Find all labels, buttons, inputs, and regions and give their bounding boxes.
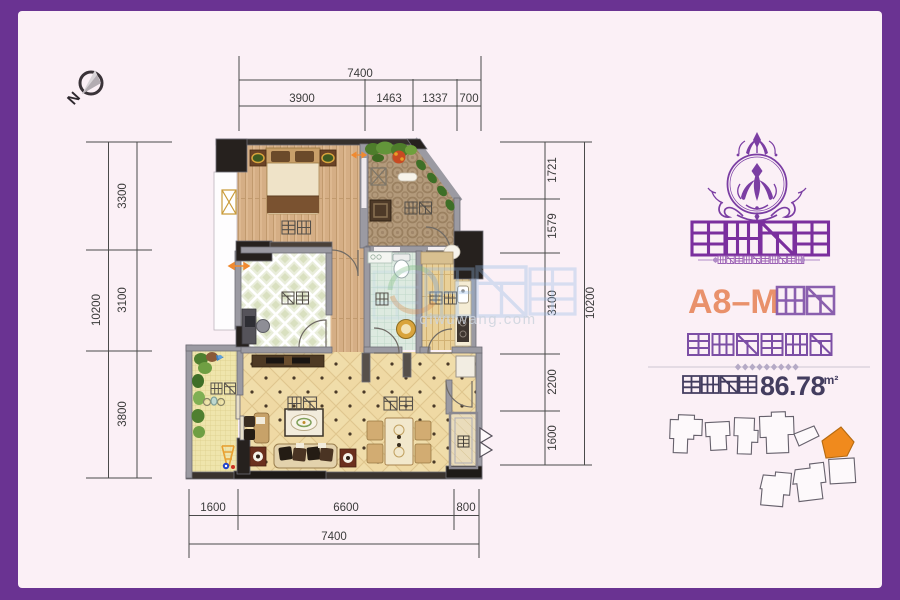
svg-text:1337: 1337	[422, 93, 448, 105]
svg-text:N: N	[64, 89, 84, 108]
svg-text:6600: 6600	[333, 502, 359, 514]
svg-text:2200: 2200	[547, 369, 559, 395]
svg-text:m²: m²	[824, 373, 839, 387]
svg-text:3100: 3100	[117, 287, 129, 313]
svg-text:qiwuwang.com: qiwuwang.com	[419, 311, 536, 328]
svg-text:1579: 1579	[547, 213, 559, 239]
svg-text:800: 800	[456, 502, 475, 514]
svg-text:1463: 1463	[376, 93, 402, 105]
svg-text:A8–M: A8–M	[688, 283, 779, 321]
svg-text:3900: 3900	[289, 93, 315, 105]
svg-text:10200: 10200	[585, 287, 597, 319]
svg-text:7400: 7400	[321, 531, 347, 543]
svg-text:1600: 1600	[547, 425, 559, 451]
svg-text:7400: 7400	[347, 68, 373, 80]
svg-text:3800: 3800	[117, 401, 129, 427]
svg-text:1721: 1721	[547, 157, 559, 183]
svg-text:86.78: 86.78	[760, 371, 826, 401]
svg-text:3300: 3300	[117, 183, 129, 209]
svg-text:1600: 1600	[200, 502, 226, 514]
svg-text:10200: 10200	[91, 294, 103, 326]
svg-text:700: 700	[459, 93, 478, 105]
